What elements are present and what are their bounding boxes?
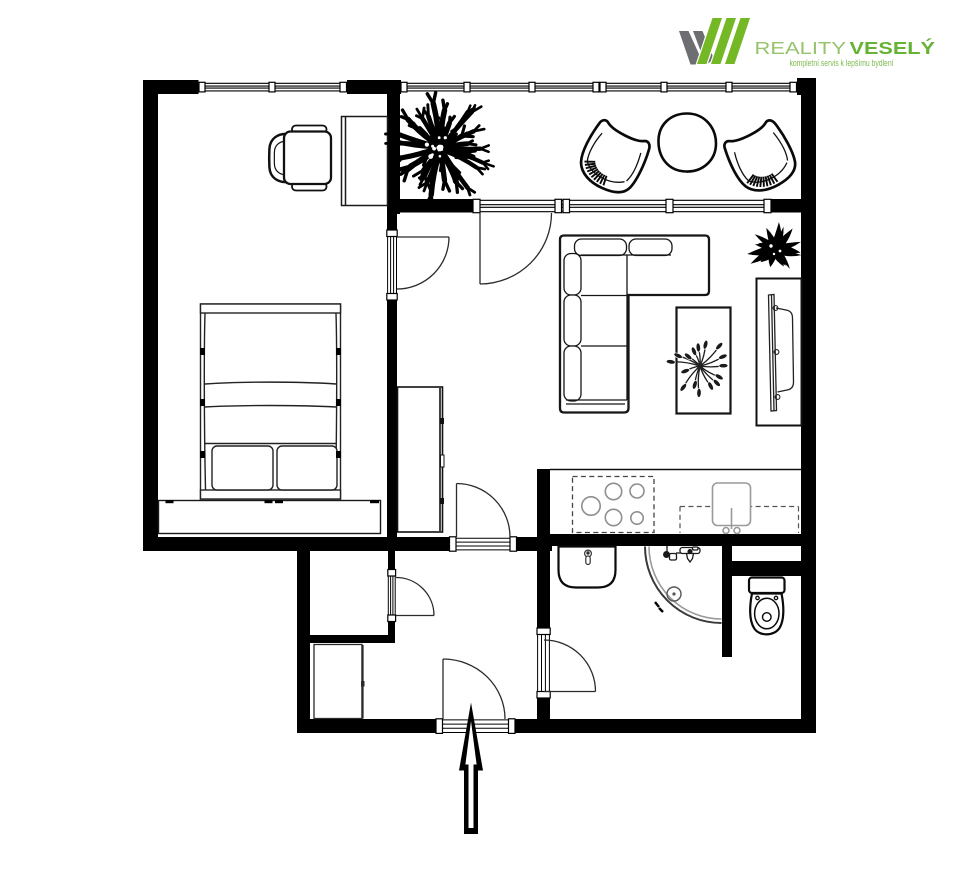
svg-text:kompletní servis k lepšímu byd: kompletní servis k lepšímu bydlení: [790, 58, 894, 68]
svg-text:REALITY: REALITY: [755, 38, 847, 58]
svg-text:VESELÝ: VESELÝ: [850, 37, 936, 58]
